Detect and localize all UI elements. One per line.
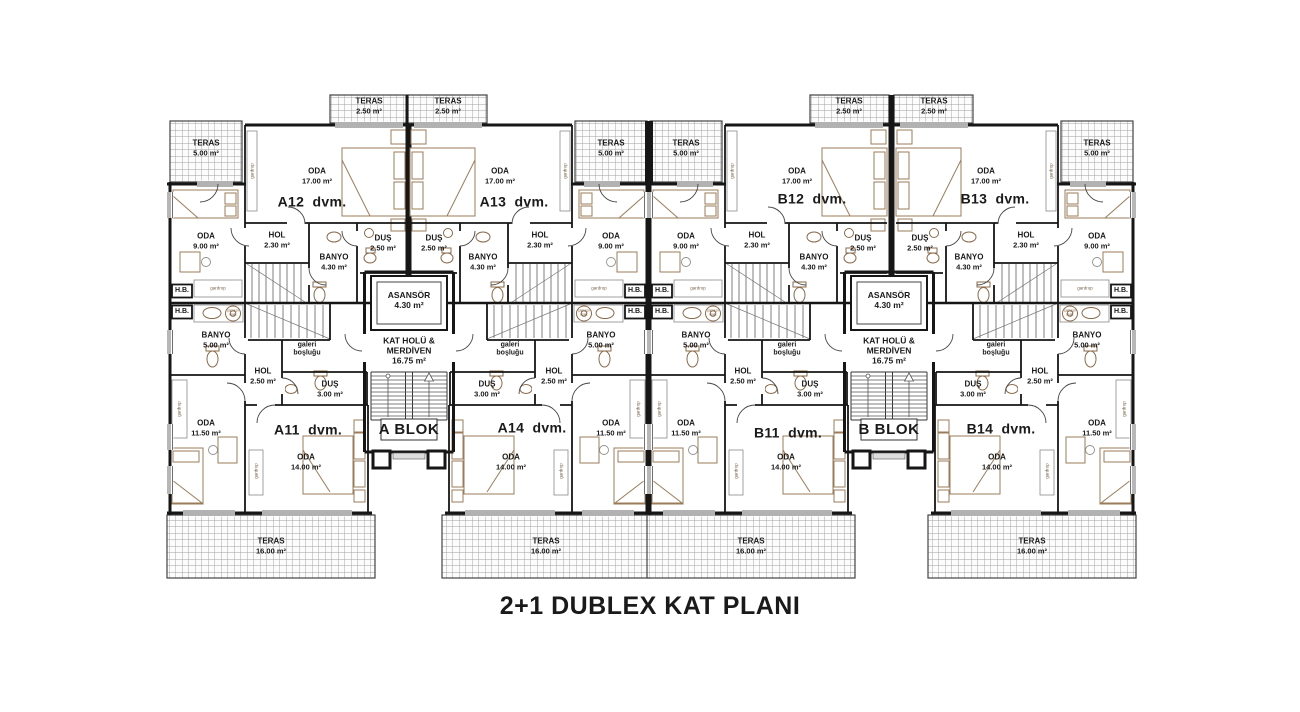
- label-b13: B13 dvm.: [961, 191, 1030, 208]
- floor-plan-canvas: TERAS5.00 m²TERAS2.50 m²ODA17.00 m²ODA9.…: [0, 0, 1300, 712]
- label-text: 2.50 m²: [250, 376, 276, 385]
- label-text: 2.30 m²: [527, 240, 553, 249]
- label-text: TERAS: [192, 139, 219, 149]
- label-text: DUŞ: [850, 234, 876, 244]
- label-text: MERDİVEN: [863, 346, 915, 356]
- label-b12: B12 dvm.: [778, 191, 847, 208]
- label-text: galeri: [496, 342, 523, 350]
- label-text: gardrop: [635, 401, 640, 417]
- label-text: 2.50 m²: [421, 243, 447, 252]
- label-text: 2.50 m²: [730, 376, 756, 385]
- label-oda9-b-right: ODA9.00 m²: [1084, 232, 1110, 251]
- label-text: TERAS: [1083, 139, 1110, 149]
- label-text: HOL: [250, 367, 276, 377]
- label-a12: A12 dvm.: [278, 194, 347, 211]
- label-teras250-b-left: TERAS2.50 m²: [835, 97, 862, 116]
- label-text: 11.50 m²: [191, 428, 221, 437]
- label-text: HOL: [730, 367, 756, 377]
- label-text: DUŞ: [421, 234, 447, 244]
- label-text: ODA: [971, 167, 1001, 177]
- label-oda17-b-right: ODA17.00 m²: [971, 167, 1001, 186]
- label-gardrop-a-right: gardrop: [635, 401, 640, 417]
- label-text: galeri: [773, 342, 800, 350]
- label-text: BANYO: [682, 331, 711, 341]
- label-teras1600-b-right: TERAS16.00 m²: [1017, 537, 1047, 556]
- label-text: gardrop: [1077, 285, 1093, 290]
- label-dus250-b-right: DUŞ2.50 m²: [907, 234, 933, 253]
- label-teras1600-a-left: TERAS16.00 m²: [256, 537, 286, 556]
- label-text: 3.00 m²: [960, 389, 986, 398]
- label-gardrop-b-left: gardrop: [656, 401, 661, 417]
- label-oda17-a-right: ODA17.00 m²: [485, 167, 515, 186]
- label-text: B13 dvm.: [961, 191, 1030, 208]
- label-dus250-a-left: DUŞ2.50 m²: [370, 234, 396, 253]
- label-text: HOL: [527, 231, 553, 241]
- label-text: H.B.: [175, 308, 189, 316]
- label-teras500-a-right: TERAS5.00 m²: [597, 139, 624, 158]
- label-text: 11.50 m²: [1082, 428, 1112, 437]
- label-text: HOL: [744, 231, 770, 241]
- label-text: 4.30 m²: [388, 300, 431, 310]
- label-teras500-b-right: TERAS5.00 m²: [1083, 139, 1110, 158]
- label-text: gardrop: [558, 463, 563, 479]
- label-text: DUŞ: [474, 380, 500, 390]
- label-hb-a-left: H.B.: [175, 287, 189, 295]
- label-text: H.B.: [628, 287, 642, 295]
- label-banyo430-b-right: BANYO4.30 m²: [955, 253, 984, 272]
- label-gardrop-b-right: gardrop: [1077, 285, 1093, 290]
- label-text: BANYO: [469, 253, 498, 263]
- label-hb-b-left: H.B.: [655, 308, 669, 316]
- label-text: 5.00 m²: [597, 148, 624, 157]
- label-hol250-a-left: HOL2.50 m²: [250, 367, 276, 386]
- label-text: H.B.: [628, 308, 642, 316]
- label-text: ODA: [302, 167, 332, 177]
- label-hol250-a-right: HOL2.50 m²: [541, 367, 567, 386]
- label-text: ODA: [1084, 232, 1110, 242]
- label-text: H.B.: [1114, 308, 1128, 316]
- label-hol230-b-right: HOL2.30 m²: [1013, 231, 1039, 250]
- label-dus300-a-left: DUŞ3.00 m²: [317, 380, 343, 399]
- label-text: 2.50 m²: [835, 106, 862, 115]
- label-text: galeri: [293, 342, 320, 350]
- label-text: 14.00 m²: [982, 462, 1012, 471]
- label-camasir-b-left: çamaşırmak.: [707, 309, 719, 316]
- label-gardrop-a-left: gardrop: [249, 163, 254, 179]
- label-text: TERAS: [736, 537, 766, 547]
- label-teras500-b-left: TERAS5.00 m²: [672, 139, 699, 158]
- label-text: 2.50 m²: [850, 243, 876, 252]
- label-camasir-a-left: çamaşırmak.: [227, 309, 239, 316]
- label-kathol-core3: KAT HOLÜ &MERDİVEN16.75 m²: [863, 336, 915, 367]
- label-b14: B14 dvm.: [967, 421, 1036, 438]
- label-text: 17.00 m²: [971, 176, 1001, 185]
- label-hol230-b-left: HOL2.30 m²: [744, 231, 770, 250]
- label-text: H.B.: [655, 287, 669, 295]
- label-text: A14 dvm.: [498, 420, 567, 437]
- label-text: BANYO: [800, 253, 829, 263]
- label-text: ODA: [193, 232, 219, 242]
- label-text: TERAS: [434, 97, 461, 107]
- label-hol230-a-right: HOL2.30 m²: [527, 231, 553, 250]
- label-text: A12 dvm.: [278, 194, 347, 211]
- label-text: B14 dvm.: [967, 421, 1036, 438]
- label-oda14-a-left: ODA14.00 m²: [291, 453, 321, 472]
- label-text: BANYO: [320, 253, 349, 263]
- label-text: ODA: [598, 232, 624, 242]
- label-text: 4.30 m²: [469, 262, 498, 271]
- label-text: DUŞ: [370, 234, 396, 244]
- label-text: 14.00 m²: [291, 462, 321, 471]
- label-text: MERDİVEN: [383, 346, 435, 356]
- label-teras1600-b-left: TERAS16.00 m²: [736, 537, 766, 556]
- label-text: mak.: [707, 313, 719, 317]
- label-text: ODA: [191, 419, 221, 429]
- label-text: ASANSÖR: [388, 290, 431, 300]
- label-dus300-b-left: DUŞ3.00 m²: [797, 380, 823, 399]
- label-text: ODA: [771, 453, 801, 463]
- label-text: 5.00 m²: [202, 340, 231, 349]
- label-text: DUŞ: [960, 380, 986, 390]
- label-hb-a-left: H.B.: [175, 308, 189, 316]
- label-text: DUŞ: [317, 380, 343, 390]
- label-text: A11 dvm.: [274, 422, 342, 439]
- label-hb-b-right: H.B.: [1114, 287, 1128, 295]
- label-text: 2.50 m²: [434, 106, 461, 115]
- label-dus250-a-right: DUŞ2.50 m²: [421, 234, 447, 253]
- label-text: 16.75 m²: [383, 356, 435, 366]
- label-oda9-a-left: ODA9.00 m²: [193, 232, 219, 251]
- label-text: TERAS: [835, 97, 862, 107]
- label-gardrop-a-left: gardrop: [176, 401, 181, 417]
- label-oda115-a-left: ODA11.50 m²: [191, 419, 221, 438]
- label-text: BANYO: [955, 253, 984, 263]
- label-text: TERAS: [531, 537, 561, 547]
- label-text: mak.: [227, 313, 239, 317]
- label-text: HOL: [1013, 231, 1039, 241]
- label-gardrop-a-right: gardrop: [562, 163, 567, 179]
- label-a14: A14 dvm.: [498, 420, 567, 437]
- label-text: 4.30 m²: [868, 300, 911, 310]
- label-gardrop-a-left: gardrop: [210, 285, 226, 290]
- label-text: ODA: [671, 419, 701, 429]
- label-text: 4.30 m²: [955, 262, 984, 271]
- label-text: H.B.: [1114, 287, 1128, 295]
- label-text: mak.: [578, 313, 590, 317]
- label-text: 16.00 m²: [736, 546, 766, 555]
- label-text: TERAS: [597, 139, 624, 149]
- label-text: gardrop: [729, 163, 734, 179]
- label-text: mak.: [1064, 313, 1076, 317]
- label-text: 2.50 m²: [920, 106, 947, 115]
- label-text: ASANSÖR: [868, 290, 911, 300]
- label-a: A BLOK: [379, 421, 440, 439]
- label-text: 2.50 m²: [541, 376, 567, 385]
- label-text: 17.00 m²: [485, 176, 515, 185]
- label-camasir-b-right: çamaşırmak.: [1064, 309, 1076, 316]
- label-text: A13 dvm.: [480, 194, 549, 211]
- label-text: 5.00 m²: [1083, 148, 1110, 157]
- label-text: H.B.: [175, 287, 189, 295]
- label-text: B11 dvm.: [754, 425, 822, 442]
- label-text: ODA: [782, 167, 812, 177]
- label-banyo430-a-right: BANYO4.30 m²: [469, 253, 498, 272]
- label-text: gardrop: [733, 463, 738, 479]
- label-banyo500-a-right: BANYO5.00 m²: [587, 331, 616, 350]
- label-dus250-b-left: DUŞ2.50 m²: [850, 234, 876, 253]
- label-text: boşluğu: [773, 350, 800, 358]
- floor-plan-title: 2+1 DUBLEX KAT PLANI: [500, 591, 801, 621]
- label-text: HOL: [1027, 367, 1053, 377]
- label-text: 5.00 m²: [1073, 340, 1102, 349]
- label-oda9-b-left: ODA9.00 m²: [673, 232, 699, 251]
- label-oda115-b-right: ODA11.50 m²: [1082, 419, 1112, 438]
- label-hol250-b-left: HOL2.50 m²: [730, 367, 756, 386]
- label-text: gardrop: [176, 401, 181, 417]
- label-oda14-a-right: ODA14.00 m²: [496, 453, 526, 472]
- label-oda115-a-right: ODA11.50 m²: [596, 419, 626, 438]
- label-text: B12 dvm.: [778, 191, 847, 208]
- label-oda9-a-right: ODA9.00 m²: [598, 232, 624, 251]
- label-text: galeri: [982, 342, 1009, 350]
- label-text: HOL: [264, 231, 290, 241]
- label-text: 5.00 m²: [682, 340, 711, 349]
- label-text: 3.00 m²: [474, 389, 500, 398]
- label-text: 2.30 m²: [744, 240, 770, 249]
- label-dus300-b-right: DUŞ3.00 m²: [960, 380, 986, 399]
- label-text: boşluğu: [496, 350, 523, 358]
- label-text: BANYO: [1073, 331, 1102, 341]
- label-teras1600-a-right: TERAS16.00 m²: [531, 537, 561, 556]
- label-hol250-b-right: HOL2.50 m²: [1027, 367, 1053, 386]
- label-text: ODA: [1082, 419, 1112, 429]
- label-banyo430-a-left: BANYO4.30 m²: [320, 253, 349, 272]
- label-text: 16.00 m²: [1017, 546, 1047, 555]
- label-text: 9.00 m²: [673, 241, 699, 250]
- label-text: HOL: [541, 367, 567, 377]
- label-text: ODA: [291, 453, 321, 463]
- label-text: 4.30 m²: [800, 262, 829, 271]
- label-banyo500-a-left: BANYO5.00 m²: [202, 331, 231, 350]
- label-oda14-b-left: ODA14.00 m²: [771, 453, 801, 472]
- label-hb-a-right: H.B.: [628, 308, 642, 316]
- label-a13: A13 dvm.: [480, 194, 549, 211]
- label-text: 14.00 m²: [771, 462, 801, 471]
- label-galeri-b-right: galeriboşluğu: [982, 342, 1009, 359]
- label-text: 16.00 m²: [531, 546, 561, 555]
- label-galeri-a-left: galeriboşluğu: [293, 342, 320, 359]
- label-text: 11.50 m²: [596, 428, 626, 437]
- label-text: 14.00 m²: [496, 462, 526, 471]
- label-text: ODA: [485, 167, 515, 177]
- label-oda17-b-left: ODA17.00 m²: [782, 167, 812, 186]
- label-text: TERAS: [355, 97, 382, 107]
- label-text: ODA: [496, 453, 526, 463]
- label-text: B BLOK: [858, 421, 919, 439]
- label-text: 3.00 m²: [797, 389, 823, 398]
- label-text: gardrop: [249, 163, 254, 179]
- label-oda115-b-left: ODA11.50 m²: [671, 419, 701, 438]
- label-text: KAT HOLÜ &: [383, 336, 435, 346]
- label-hb-b-right: H.B.: [1114, 308, 1128, 316]
- label-gardrop-b-left: gardrop: [729, 163, 734, 179]
- label-text: 2.30 m²: [264, 240, 290, 249]
- label-text: 17.00 m²: [782, 176, 812, 185]
- label-text: 4.30 m²: [320, 262, 349, 271]
- label-text: BANYO: [202, 331, 231, 341]
- label-text: DUŞ: [797, 380, 823, 390]
- label-camasir-a-right: çamaşırmak.: [578, 309, 590, 316]
- label-text: 2.50 m²: [1027, 376, 1053, 385]
- label-teras250-b-right: TERAS2.50 m²: [920, 97, 947, 116]
- label-asansor-core1: ASANSÖR4.30 m²: [868, 290, 911, 310]
- label-text: gardrop: [656, 401, 661, 417]
- label-text: TERAS: [256, 537, 286, 547]
- label-text: boşluğu: [293, 350, 320, 358]
- label-text: boşluğu: [982, 350, 1009, 358]
- label-asansor-core0: ASANSÖR4.30 m²: [388, 290, 431, 310]
- label-text: gardrop: [690, 285, 706, 290]
- label-text: gardrop: [210, 285, 226, 290]
- label-gardrop-a-left: gardrop: [253, 463, 258, 479]
- label-text: 11.50 m²: [671, 428, 701, 437]
- label-banyo500-b-right: BANYO5.00 m²: [1073, 331, 1102, 350]
- label-text: ODA: [982, 453, 1012, 463]
- label-text: DUŞ: [907, 234, 933, 244]
- label-text: gardrop: [591, 285, 607, 290]
- label-hb-a-right: H.B.: [628, 287, 642, 295]
- label-oda14-b-right: ODA14.00 m²: [982, 453, 1012, 472]
- label-text: 2.30 m²: [1013, 240, 1039, 249]
- label-text: 9.00 m²: [598, 241, 624, 250]
- label-hol230-a-left: HOL2.30 m²: [264, 231, 290, 250]
- label-text: gardrop: [1044, 463, 1049, 479]
- label-text: gardrop: [562, 163, 567, 179]
- label-galeri-b-left: galeriboşluğu: [773, 342, 800, 359]
- label-text: 2.50 m²: [370, 243, 396, 252]
- label-hb-b-left: H.B.: [655, 287, 669, 295]
- label-b11: B11 dvm.: [754, 425, 822, 442]
- label-gardrop-b-left: gardrop: [690, 285, 706, 290]
- label-gardrop-a-right: gardrop: [558, 463, 563, 479]
- label-text: TERAS: [1017, 537, 1047, 547]
- label-gardrop-a-right: gardrop: [591, 285, 607, 290]
- label-gardrop-b-right: gardrop: [1044, 463, 1049, 479]
- label-oda17-a-left: ODA17.00 m²: [302, 167, 332, 186]
- label-a11: A11 dvm.: [274, 422, 342, 439]
- label-teras250-a-right: TERAS2.50 m²: [434, 97, 461, 116]
- label-text: 9.00 m²: [1084, 241, 1110, 250]
- label-text: gardrop: [1121, 401, 1126, 417]
- label-text: 5.00 m²: [192, 148, 219, 157]
- label-text: 5.00 m²: [587, 340, 616, 349]
- label-banyo430-b-left: BANYO4.30 m²: [800, 253, 829, 272]
- label-text: TERAS: [920, 97, 947, 107]
- label-text: KAT HOLÜ &: [863, 336, 915, 346]
- label-text: 2.50 m²: [907, 243, 933, 252]
- label-galeri-a-right: galeriboşluğu: [496, 342, 523, 359]
- label-text: 17.00 m²: [302, 176, 332, 185]
- label-text: 9.00 m²: [193, 241, 219, 250]
- label-text: A BLOK: [379, 421, 440, 439]
- label-dus300-a-right: DUŞ3.00 m²: [474, 380, 500, 399]
- label-text: gardrop: [253, 463, 258, 479]
- label-text: ODA: [596, 419, 626, 429]
- label-gardrop-b-right: gardrop: [1048, 163, 1053, 179]
- label-text: TERAS: [672, 139, 699, 149]
- label-text: ODA: [673, 232, 699, 242]
- label-text: 16.75 m²: [863, 356, 915, 366]
- label-b: B BLOK: [858, 421, 919, 439]
- label-text: 16.00 m²: [256, 546, 286, 555]
- label-teras500-a-left: TERAS5.00 m²: [192, 139, 219, 158]
- label-teras250-a-left: TERAS2.50 m²: [355, 97, 382, 116]
- label-kathol-core2: KAT HOLÜ &MERDİVEN16.75 m²: [383, 336, 435, 367]
- label-text: 5.00 m²: [672, 148, 699, 157]
- label-gardrop-b-left: gardrop: [733, 463, 738, 479]
- label-banyo500-b-left: BANYO5.00 m²: [682, 331, 711, 350]
- label-gardrop-b-right: gardrop: [1121, 401, 1126, 417]
- label-text: 2.50 m²: [355, 106, 382, 115]
- label-text: gardrop: [1048, 163, 1053, 179]
- label-text: BANYO: [587, 331, 616, 341]
- label-text: 3.00 m²: [317, 389, 343, 398]
- label-text: H.B.: [655, 308, 669, 316]
